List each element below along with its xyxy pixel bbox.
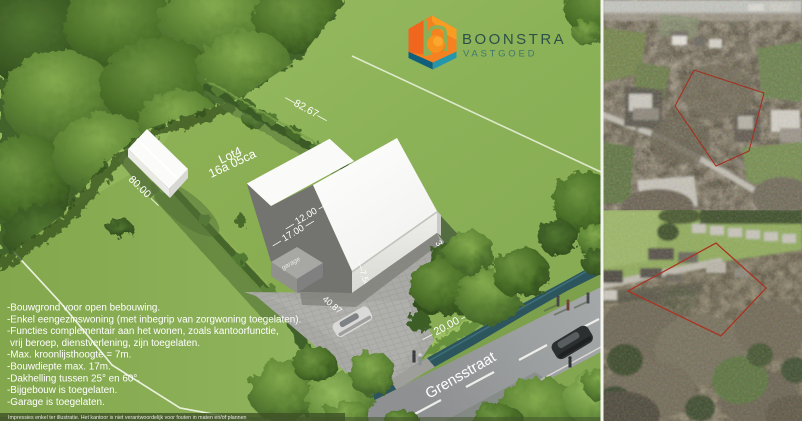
svg-text:VASTGOED: VASTGOED [463, 49, 537, 60]
svg-text:-Garage is toegelaten.: -Garage is toegelaten. [7, 397, 105, 408]
svg-text:-Bouwdiepte max. 17m.: -Bouwdiepte max. 17m. [7, 362, 111, 373]
svg-text:-Enkel eengezinswoning (met in: -Enkel eengezinswoning (met inbegrip van… [7, 314, 301, 325]
svg-text:Impressies enkel ter illustrat: Impressies enkel ter illustratie. Het ka… [8, 415, 247, 421]
svg-text:-Bouwgrond voor open bebouwing: -Bouwgrond voor open bebouwing. [7, 303, 160, 314]
svg-text:-Max. kroonlijsthoogte = 7m.: -Max. kroonlijsthoogte = 7m. [7, 350, 131, 361]
svg-text:-Functies complementair aan he: -Functies complementair aan het wonen, z… [7, 326, 279, 337]
svg-text:-Bijgebouw is toegelaten.: -Bijgebouw is toegelaten. [7, 385, 117, 396]
svg-text:BOONSTRA: BOONSTRA [462, 31, 566, 48]
svg-text:-Dakhelling tussen 25° en 60°.: -Dakhelling tussen 25° en 60°. [7, 373, 140, 384]
svg-text:vrij beroep, dienstverlening,: vrij beroep, dienstverlening, zijn toege… [10, 338, 200, 349]
